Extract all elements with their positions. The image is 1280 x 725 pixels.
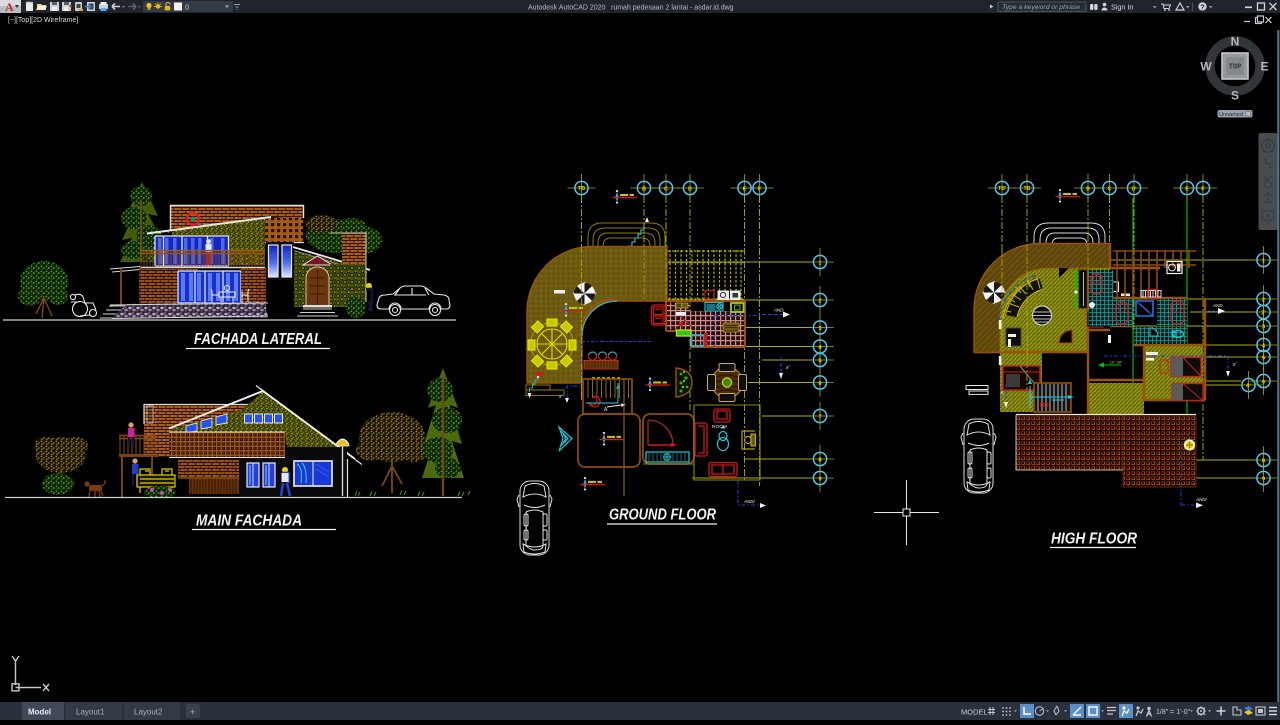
svg-text:Layout2: Layout2 [134,708,163,717]
svg-text:D: D [688,187,692,193]
svg-text:C: C [1108,187,1112,193]
svg-text:AND/: AND/ [743,499,756,504]
svg-text:TB': TB' [998,186,1006,192]
svg-text:rumah pedesaan 2 lantai - asda: rumah pedesaan 2 lantai - asdar.id.dwg [611,5,734,12]
svg-text:E: E [1260,60,1268,74]
svg-text:W: W [1200,60,1212,74]
svg-text:D': D' [1132,187,1137,193]
svg-text:7: 7 [818,415,821,421]
svg-text:[−][Top][2D Wireframe]: [−][Top][2D Wireframe] [8,17,78,24]
svg-text:AND/: AND/ [1195,497,1208,502]
svg-text:F: F [1201,187,1204,193]
svg-text:Autodesk AutoCAD 2020: Autodesk AutoCAD 2020 [528,5,606,12]
svg-text:B: B [1086,187,1090,193]
svg-text:E: E [743,187,747,193]
svg-text:A: A [5,0,14,13]
svg-text:BD: BD [1040,403,1049,409]
svg-text:AND: AND [1212,303,1223,308]
svg-text:MODEL: MODEL [961,708,988,717]
svg-text:?: ? [1200,2,1205,11]
svg-text:Type a keyword or phrase: Type a keyword or phrase [1002,4,1080,11]
svg-text:TB: TB [578,186,585,192]
svg-text:E: E [1185,187,1189,193]
svg-text:+: + [190,707,195,717]
svg-text:GROUND FLOOR: GROUND FLOOR [609,507,716,524]
svg-text:ROOM: ROOM [712,424,727,430]
svg-text:N: N [1231,35,1240,49]
svg-text:HIGH FLOOR: HIGH FLOOR [1051,531,1137,548]
svg-text:TB: TB [1024,186,1031,192]
svg-text:2: 2 [818,299,821,305]
svg-text:Model: Model [28,708,51,717]
svg-text:6': 6' [1246,384,1251,390]
svg-text:Unnamed: Unnamed [1219,112,1243,118]
svg-text:MAIN FACHADA: MAIN FACHADA [196,513,302,530]
svg-text:x: x [558,394,562,400]
svg-text:2: 2 [1262,298,1265,304]
svg-text:C: C [664,187,668,193]
svg-text:LV. UP: LV. UP [1110,360,1122,365]
svg-text:Layout1: Layout1 [76,708,105,717]
svg-text:2': 2' [1261,311,1266,317]
svg-text:S: S [1231,89,1239,103]
svg-text:x: x [1000,390,1004,396]
svg-text:AND: AND [773,308,784,313]
svg-text:0: 0 [185,3,189,12]
svg-text:B: B [642,187,646,193]
svg-text:1/8" = 1'-0": 1/8" = 1'-0" [1156,709,1191,716]
svg-text:TOP: TOP [1229,64,1242,72]
svg-text:Sign In: Sign In [1111,3,1133,12]
svg-text:FACHADA LATERAL: FACHADA LATERAL [194,331,322,348]
